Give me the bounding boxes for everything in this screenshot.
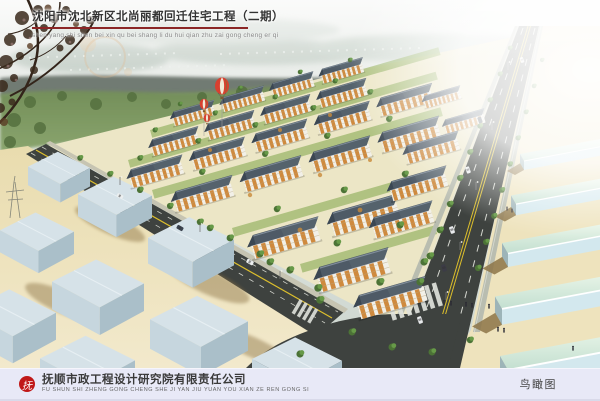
- company-logo: 抚: [19, 376, 35, 392]
- view-type-label: 鸟瞰图: [520, 376, 558, 392]
- company-name-pinyin: FU SHUN SHI ZHENG GONG CHENG SHE JI YAN …: [42, 388, 309, 394]
- company-logo-glyph: 抚: [22, 377, 32, 392]
- project-title: 沈阳市沈北新区北尚丽都回迁住宅工程（二期）: [32, 8, 284, 24]
- company-name: 抚顺市政工程设计研究院有限责任公司: [42, 375, 309, 387]
- title-block: 沈阳市沈北新区北尚丽都回迁住宅工程（二期） shen yang shi shen…: [32, 8, 284, 39]
- company-block: 抚顺市政工程设计研究院有限责任公司 FU SHUN SHI ZHENG GONG…: [42, 375, 309, 394]
- rendering-page: 沈阳市沈北新区北尚丽都回迁住宅工程（二期） shen yang shi shen…: [0, 0, 600, 401]
- site-rendering: [0, 0, 600, 369]
- title-underline: [32, 27, 248, 29]
- project-title-pinyin: shen yang shi shen bei xin qu bei shang …: [32, 32, 284, 39]
- footer-bar: 抚 抚顺市政工程设计研究院有限责任公司 FU SHUN SHI ZHENG GO…: [0, 368, 600, 401]
